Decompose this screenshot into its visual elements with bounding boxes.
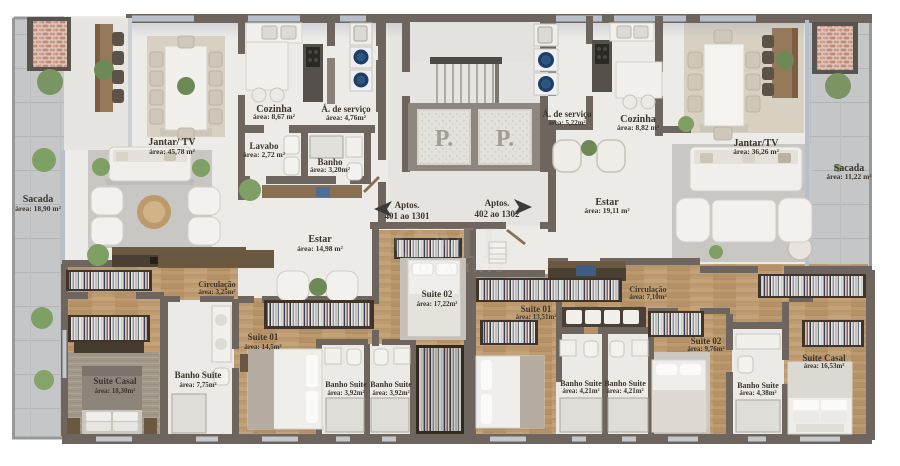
svg-text:Banho Suite: Banho Suite <box>325 380 367 389</box>
svg-text:área: 3,92m²: área: 3,92m² <box>327 389 364 397</box>
svg-text:área: 13,51m²: área: 13,51m² <box>516 313 557 321</box>
svg-text:Banho Suite: Banho Suite <box>175 370 222 380</box>
svg-text:área: 18,30m²: área: 18,30m² <box>95 387 136 395</box>
svg-text:área: 8,82 m²: área: 8,82 m² <box>617 123 660 132</box>
svg-text:área: 7,75m²: área: 7,75m² <box>179 381 216 389</box>
svg-text:P.: P. <box>435 126 453 152</box>
svg-text:área: 17,22m²: área: 17,22m² <box>417 300 458 308</box>
svg-text:MORAMAIS: MORAMAIS <box>403 260 507 275</box>
svg-text:Á. de serviço: Á. de serviço <box>542 109 592 119</box>
svg-text:área: 36,26 m²: área: 36,26 m² <box>733 147 779 156</box>
svg-text:área: 3,92m²: área: 3,92m² <box>372 389 409 397</box>
svg-text:área: 14,98 m²: área: 14,98 m² <box>297 244 343 253</box>
svg-text:área: 5,22m²: área: 5,22m² <box>548 119 585 127</box>
svg-text:área: 2,72 m²: área: 2,72 m² <box>243 150 286 159</box>
svg-text:área: 4,38m²: área: 4,38m² <box>739 389 776 397</box>
svg-text:Suite Casal: Suite Casal <box>93 376 137 386</box>
svg-text:área: 19,11 m²: área: 19,11 m² <box>584 206 630 215</box>
svg-text:P.: P. <box>496 126 514 152</box>
svg-text:área: 16,53m²: área: 16,53m² <box>804 362 845 370</box>
svg-text:área: 3,20m²: área: 3,20m² <box>310 165 351 174</box>
svg-text:área: 8,67 m²: área: 8,67 m² <box>253 112 296 121</box>
svg-text:área: 3,25m²: área: 3,25m² <box>198 288 235 296</box>
svg-text:área: 18,90 m²: área: 18,90 m² <box>15 204 61 213</box>
svg-text:Suite 01: Suite 01 <box>248 332 279 342</box>
svg-text:área: 4,21m²: área: 4,21m² <box>606 387 643 395</box>
svg-text:área: 4,76m²: área: 4,76m² <box>326 113 367 122</box>
svg-text:área: 14,5m²: área: 14,5m² <box>244 343 281 351</box>
svg-text:área: 11,22 m²: área: 11,22 m² <box>826 172 872 181</box>
svg-text:área: 4,21m²: área: 4,21m² <box>562 387 599 395</box>
svg-text:área: 7,10m²: área: 7,10m² <box>629 293 666 301</box>
svg-text:Aptos.: Aptos. <box>485 198 510 208</box>
svg-text:área: 45,78 m²: área: 45,78 m² <box>149 147 195 156</box>
svg-text:área: 9,76m²: área: 9,76m² <box>687 345 724 353</box>
svg-text:402 ao 1302: 402 ao 1302 <box>475 209 521 219</box>
svg-text:Suite 02: Suite 02 <box>422 289 453 299</box>
svg-text:Aptos.: Aptos. <box>395 200 420 210</box>
svg-text:Banho Suite: Banho Suite <box>370 380 412 389</box>
